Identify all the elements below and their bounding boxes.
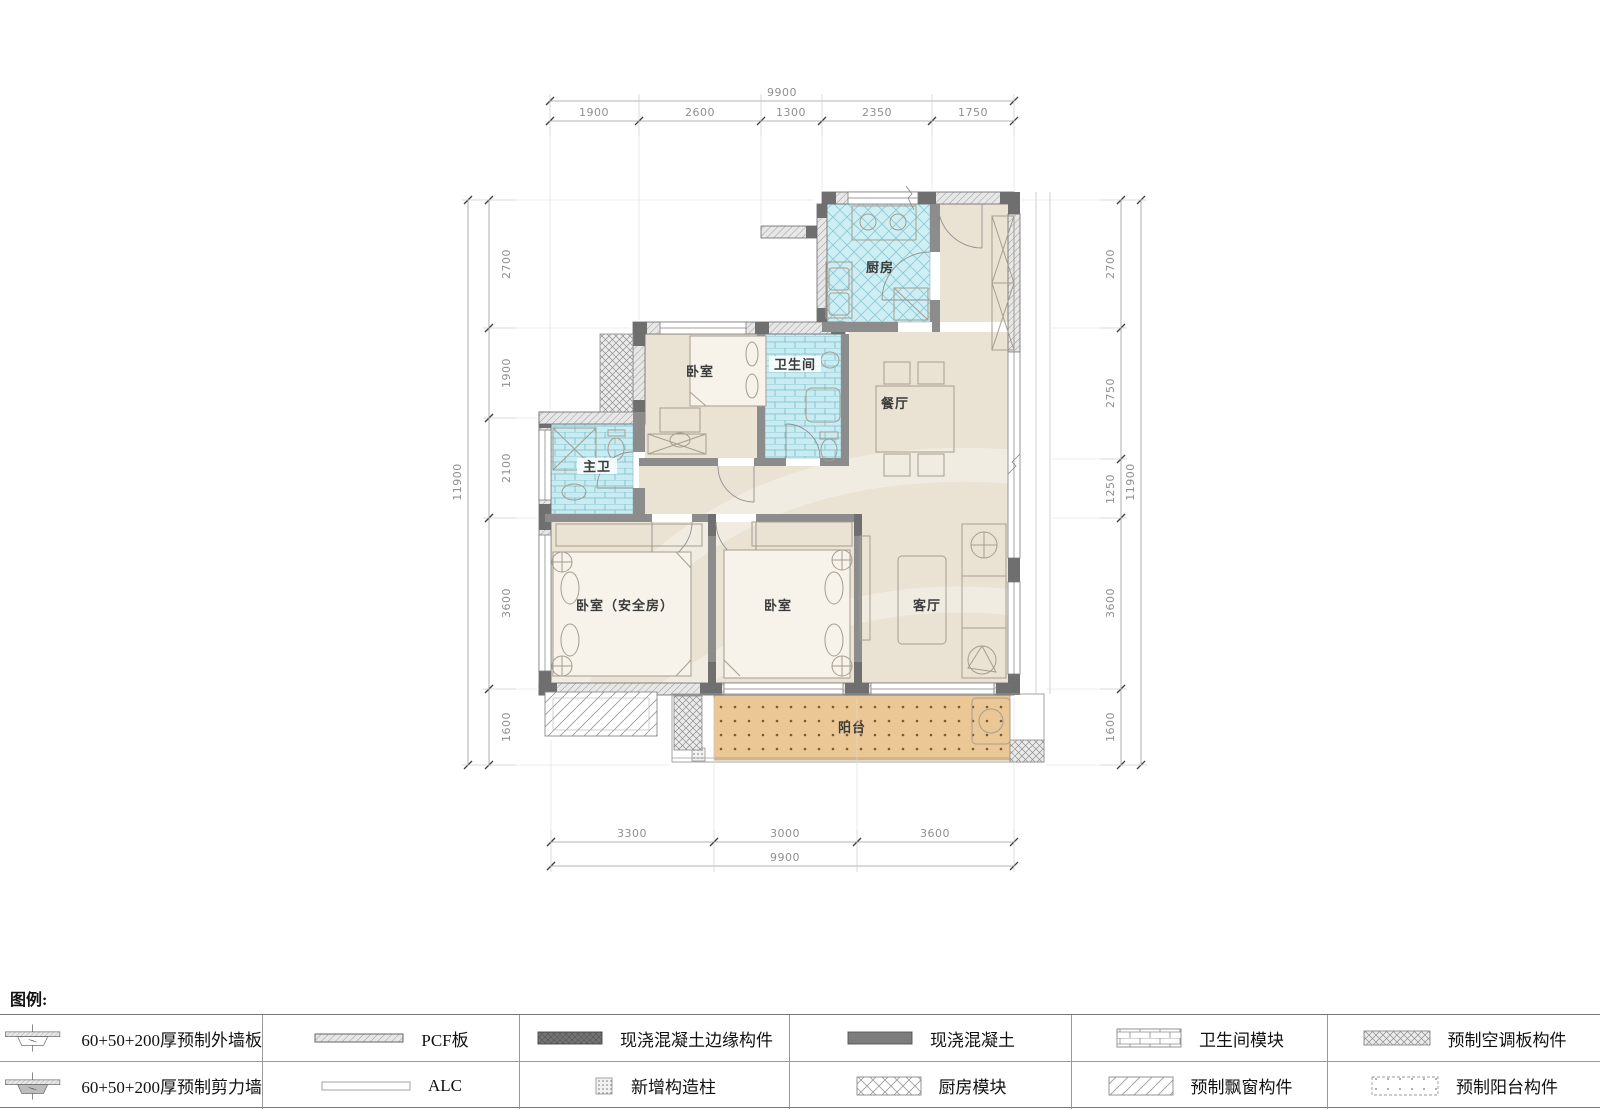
legend-item-bathroom-module: 卫生间模块 — [1072, 1015, 1328, 1062]
dim-right-seg-1: 2750 — [1104, 378, 1117, 408]
bathroom-module-icon — [1115, 1026, 1183, 1050]
legend-item-exterior-wall-panel: 60+50+200厚预制外墙板 — [0, 1015, 263, 1062]
legend-label: 预制飘窗构件 — [1191, 1073, 1293, 1098]
legend-label: 现浇混凝土 — [930, 1026, 1015, 1051]
dim-top-total: 9900 — [767, 86, 797, 99]
room-label-bedroom-mid: 卧室 — [764, 598, 792, 613]
legend-label: 预制阳台构件 — [1456, 1073, 1558, 1098]
dim-bottom-seg-1: 3000 — [770, 827, 800, 840]
ac-slab-member-icon — [1362, 1028, 1432, 1048]
legend-item-cip-edge-member: 现浇混凝土边缘构件 — [520, 1015, 790, 1062]
legend-item-cip-concrete: 现浇混凝土 — [790, 1015, 1072, 1062]
dim-top-seg-1: 2600 — [685, 106, 715, 119]
room-label-master-bath: 主卫 — [583, 459, 611, 474]
legend-item-alc: ALC — [263, 1062, 520, 1109]
dim-right-seg-4: 1600 — [1104, 712, 1117, 742]
kitchen-module-icon — [855, 1074, 923, 1098]
shear-wall-icon — [0, 1064, 65, 1108]
room-label-bedroom-top: 卧室 — [686, 364, 714, 379]
dim-left-seg-1: 1900 — [500, 358, 513, 388]
bay-window-member-icon — [1107, 1074, 1175, 1098]
room-label-bathroom: 卫生间 — [774, 357, 816, 372]
cip-concrete-icon — [846, 1028, 914, 1048]
legend-item-ac-slab-member: 预制空调板构件 — [1328, 1015, 1600, 1062]
floor-plan-svg: 厨房 卧室 卫生间 餐厅 主卫 卧室（安全房） 卧室 客厅 阳台 9900 — [0, 0, 1600, 985]
room-label-bedroom-safe: 卧室（安全房） — [576, 598, 674, 613]
legend-item-pcf-panel: PCF板 — [263, 1015, 520, 1062]
alc-icon — [320, 1076, 412, 1096]
cip-edge-member-icon — [536, 1028, 604, 1048]
room-label-kitchen: 厨房 — [866, 260, 894, 275]
legend-item-balcony-member: 预制阳台构件 — [1328, 1062, 1600, 1109]
legend-label: 新增构造柱 — [631, 1073, 716, 1098]
dim-left-seg-4: 1600 — [500, 712, 513, 742]
legend-label: 现浇混凝土边缘构件 — [620, 1026, 773, 1051]
dim-left-seg-2: 2100 — [500, 453, 513, 483]
room-label-balcony: 阳台 — [838, 720, 866, 735]
dim-top-seg-3: 2350 — [862, 106, 892, 119]
legend-label: ALC — [428, 1076, 462, 1096]
new-column-icon — [593, 1075, 615, 1097]
legend-label: 60+50+200厚预制剪力墙 — [81, 1073, 262, 1098]
dim-top-seg-2: 1300 — [776, 106, 806, 119]
legend-item-kitchen-module: 厨房模块 — [790, 1062, 1072, 1109]
dim-left-seg-0: 2700 — [500, 249, 513, 279]
legend-item-new-column: 新增构造柱 — [520, 1062, 790, 1109]
dim-left-total: 11900 — [451, 463, 464, 501]
legend-title: 图例: — [10, 986, 47, 1010]
room-label-dining: 餐厅 — [880, 396, 909, 411]
dim-right-total: 11900 — [1124, 463, 1137, 501]
legend-item-bay-window-member: 预制飘窗构件 — [1072, 1062, 1328, 1109]
dim-bottom-total: 9900 — [770, 851, 800, 864]
dim-top-seg-0: 1900 — [579, 106, 609, 119]
dim-bottom-seg-0: 3300 — [617, 827, 647, 840]
legend-label: 厨房模块 — [939, 1073, 1007, 1098]
exterior-wall-panel-icon — [0, 1016, 65, 1060]
legend-item-shear-wall: 60+50+200厚预制剪力墙 — [0, 1062, 263, 1109]
legend-label: PCF板 — [421, 1026, 468, 1051]
room-label-living: 客厅 — [913, 598, 941, 613]
bay-window — [545, 692, 657, 736]
legend-table: 60+50+200厚预制外墙板 PCF板 现浇混凝土边缘构件 现浇混凝土 卫生间… — [0, 1014, 1600, 1108]
dim-bottom-seg-2: 3600 — [920, 827, 950, 840]
pcf-panel-icon — [313, 1028, 405, 1048]
dim-top-seg-4: 1750 — [958, 106, 988, 119]
balcony-member-icon — [1370, 1074, 1440, 1098]
dim-right-seg-2: 1250 — [1104, 474, 1117, 504]
dim-right-seg-0: 2700 — [1104, 249, 1117, 279]
legend-label: 卫生间模块 — [1199, 1026, 1284, 1051]
dim-right-seg-3: 3600 — [1104, 588, 1117, 618]
legend-label: 60+50+200厚预制外墙板 — [81, 1026, 262, 1051]
floor-plan-sheet: 厨房 卧室 卫生间 餐厅 主卫 卧室（安全房） 卧室 客厅 阳台 9900 — [0, 0, 1600, 1110]
dim-left-seg-3: 3600 — [500, 588, 513, 618]
legend-label: 预制空调板构件 — [1448, 1026, 1567, 1051]
